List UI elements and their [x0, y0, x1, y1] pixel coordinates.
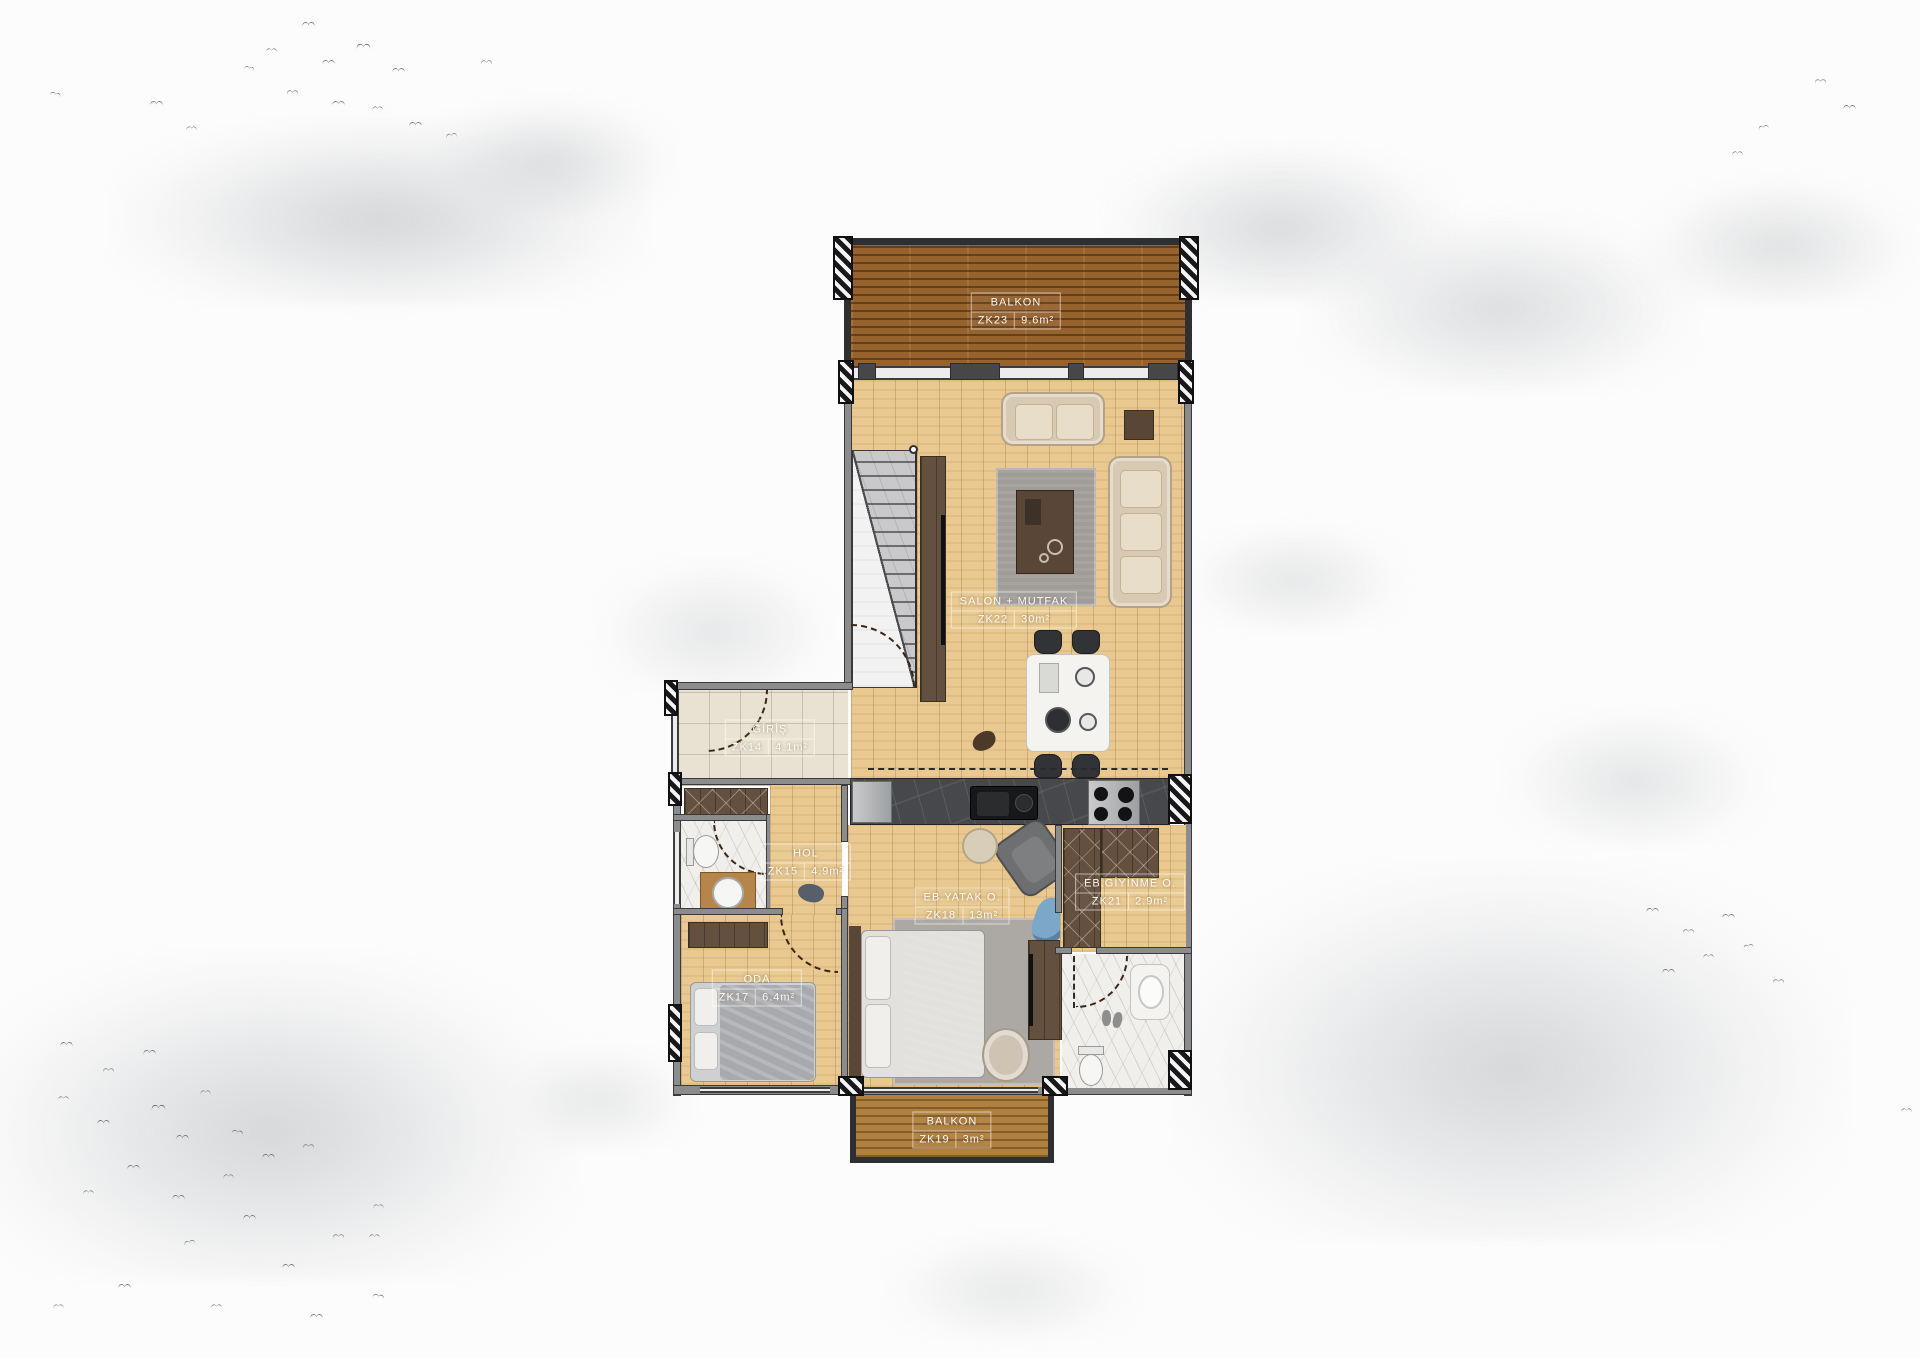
cloud: [420, 95, 680, 215]
pier: [838, 1076, 864, 1096]
room-area: 6.4m²: [755, 990, 801, 1006]
bird-icon: [172, 1193, 185, 1201]
bird-icon: [332, 99, 345, 107]
bathroom-toilet-bowl: [1079, 1054, 1103, 1086]
window-mullion: [950, 363, 1000, 380]
bedroom-tv-screen: [1029, 954, 1033, 1026]
wall: [1184, 368, 1192, 780]
kitchen-zone-dashed-line: [868, 768, 1168, 770]
bird-icon: [186, 125, 196, 131]
cloud: [1500, 705, 1770, 845]
bird-icon: [49, 90, 61, 99]
room-code: ZK15: [762, 864, 804, 880]
bird-icon: [58, 1095, 69, 1102]
cooktop: [1088, 780, 1140, 825]
cloud: [1640, 175, 1920, 305]
slippers-icon: [1102, 1010, 1111, 1026]
room-code: ZK19: [913, 1132, 955, 1148]
bird-icon: [446, 131, 458, 139]
room-area: 30m²: [1014, 612, 1056, 628]
room-area: 4.9m²: [804, 864, 850, 880]
bird-icon: [60, 1040, 73, 1048]
bird-icon: [1662, 967, 1675, 975]
pier: [664, 680, 678, 716]
bird-icon: [1843, 103, 1856, 111]
room-code: ZK21: [1086, 894, 1128, 910]
bird-icon: [1683, 927, 1695, 934]
entry-closet: [684, 788, 768, 816]
room-area: 13m²: [962, 908, 1004, 924]
bird-icon: [1732, 150, 1743, 157]
bird-icon: [97, 1118, 110, 1126]
bird-icon: [176, 1133, 189, 1141]
bedroom-window: [862, 1087, 1038, 1093]
window-mullion: [1148, 363, 1178, 380]
coffee-table: [1016, 490, 1074, 574]
bird-icon: [151, 1103, 165, 1112]
kitchen-sink: [970, 786, 1038, 820]
bird-icon: [1773, 977, 1785, 984]
bathroom-door-leaf: [1073, 956, 1075, 1008]
bird-icon: [266, 47, 277, 54]
wall: [673, 778, 851, 785]
room-code: ZK23: [972, 313, 1014, 329]
floor-plan-scene: BALKON ZK239.6m² SALON + MUTFAK ZK2230m²…: [0, 0, 1920, 1358]
room-area: 9.6m²: [1014, 313, 1060, 329]
bird-icon: [409, 120, 422, 128]
wc-window: [673, 832, 681, 904]
pier: [668, 1004, 682, 1062]
wall: [1096, 947, 1192, 954]
bed-headboard: [849, 926, 861, 1080]
room-code: ZK18: [920, 908, 962, 924]
bird-icon: [373, 1203, 383, 1209]
bird-icon: [243, 1213, 256, 1221]
room-label-giyinme: EB.GİYİNME O. ZK212.9m²: [1075, 874, 1185, 911]
room-label-giris: GİRİŞ ZK144.1m²: [725, 720, 815, 757]
master-blanket: [903, 932, 983, 1076]
bird-icon: [1646, 906, 1659, 914]
bird-icon: [200, 1089, 210, 1095]
bird-icon: [1703, 953, 1714, 960]
room-name: SALON + MUTFAK: [952, 593, 1076, 612]
pier: [1179, 236, 1199, 300]
stair-railing: [915, 450, 917, 688]
dining-chair: [1034, 754, 1062, 778]
bird-icon: [211, 1303, 222, 1310]
cloud: [590, 555, 840, 695]
room-code: ZK14: [726, 740, 768, 756]
room-name: BALKON: [972, 294, 1060, 313]
pier: [1168, 774, 1192, 824]
bird-icon: [83, 1189, 94, 1196]
oda-window: [700, 1087, 830, 1093]
bedroom-tv-unit: [1028, 940, 1062, 1040]
pier: [1042, 1076, 1068, 1096]
bird-icon: [356, 42, 370, 51]
bird-icon: [53, 1303, 63, 1309]
room-name: EB.GİYİNME O.: [1076, 875, 1184, 894]
dining-chair: [1072, 630, 1100, 654]
wall: [841, 908, 848, 1085]
bird-icon: [118, 1282, 131, 1290]
room-label-balkon-top: BALKON ZK239.6m²: [971, 293, 1061, 330]
bird-icon: [282, 1262, 295, 1270]
room-label-oda: ODA ZK176.4m²: [712, 970, 802, 1007]
bird-icon: [333, 1232, 345, 1239]
round-side-table: [962, 828, 998, 864]
wall: [671, 682, 853, 690]
room-label-balkon-bottom: BALKON ZK193m²: [912, 1112, 991, 1149]
cloud: [0, 950, 580, 1280]
bird-icon: [392, 66, 405, 74]
side-table: [1124, 410, 1154, 440]
dining-chair: [1072, 754, 1100, 778]
room-label-hol: HOL ZK154.9m²: [761, 844, 851, 881]
wall: [1048, 1095, 1054, 1163]
bird-icon: [372, 105, 382, 111]
room-label-salon: SALON + MUTFAK ZK2230m²: [951, 592, 1077, 629]
wc-toilet-bowl: [693, 835, 719, 868]
room-name: EB.YATAK O.: [915, 889, 1008, 908]
room-area: 3m²: [956, 1132, 991, 1148]
room-name: BALKON: [913, 1113, 990, 1132]
master-pillow: [865, 1004, 891, 1068]
wall: [673, 814, 773, 821]
window-mullion: [858, 363, 876, 380]
dressing-wardrobe-top: [1101, 828, 1159, 878]
oda-pillow: [694, 1032, 718, 1070]
railing-post: [909, 445, 918, 454]
bird-icon: [1901, 1107, 1912, 1114]
wc-sink: [712, 877, 744, 909]
cloud: [1170, 860, 1850, 1240]
cloud: [880, 1230, 1140, 1340]
bird-icon: [369, 1233, 380, 1240]
bird-icon: [1743, 942, 1754, 950]
bird-icon: [262, 1152, 275, 1160]
bird-icon: [1815, 77, 1827, 84]
bird-icon: [372, 1291, 385, 1300]
master-pillow: [865, 936, 891, 1000]
room-code: ZK22: [972, 612, 1014, 628]
room-area: 4.1m²: [768, 740, 814, 756]
room-name: HOL: [762, 845, 850, 864]
bird-icon: [287, 88, 299, 95]
bird-icon: [223, 1173, 233, 1179]
room-code: ZK17: [713, 990, 755, 1006]
bird-icon: [231, 1128, 244, 1137]
bird-icon: [1722, 912, 1735, 920]
bird-icon: [150, 99, 163, 107]
wall: [841, 785, 848, 842]
wall: [850, 1095, 856, 1163]
pier: [1178, 360, 1194, 404]
room-name: GİRİŞ: [726, 721, 814, 740]
bird-icon: [322, 58, 335, 66]
bird-icon: [103, 1066, 115, 1073]
sofa-two-seat: [1001, 392, 1105, 446]
pier: [838, 360, 854, 404]
oda-wardrobe: [688, 922, 768, 948]
bird-icon: [302, 20, 315, 28]
pier: [1168, 1050, 1192, 1090]
fridge: [852, 781, 892, 823]
tv-screen-icon: [941, 515, 945, 645]
living-window-band: [851, 366, 1185, 380]
pier: [833, 236, 853, 300]
bird-icon: [244, 64, 255, 72]
bird-icon: [143, 1048, 156, 1056]
wall: [850, 1157, 1054, 1163]
room-name: ODA: [713, 971, 801, 990]
bird-icon: [303, 1142, 315, 1149]
wall: [673, 908, 783, 915]
window-mullion: [1068, 363, 1084, 380]
bird-icon: [127, 1163, 140, 1171]
cloud: [1180, 520, 1410, 630]
dining-chair: [1034, 630, 1062, 654]
wall: [1055, 825, 1062, 913]
bathroom-sink: [1130, 964, 1170, 1020]
wall: [1055, 947, 1072, 954]
dining-table: [1026, 654, 1110, 752]
bed-pouf: [982, 1028, 1030, 1082]
room-label-eb-yatak: EB.YATAK O. ZK1813m²: [914, 888, 1009, 925]
pier: [668, 772, 682, 806]
bird-icon: [310, 1312, 323, 1320]
bird-icon: [481, 58, 493, 65]
bird-icon: [1758, 123, 1769, 131]
wall: [844, 238, 1192, 245]
room-area: 2.9m²: [1128, 894, 1174, 910]
sofa-three-seat: [1108, 456, 1172, 608]
